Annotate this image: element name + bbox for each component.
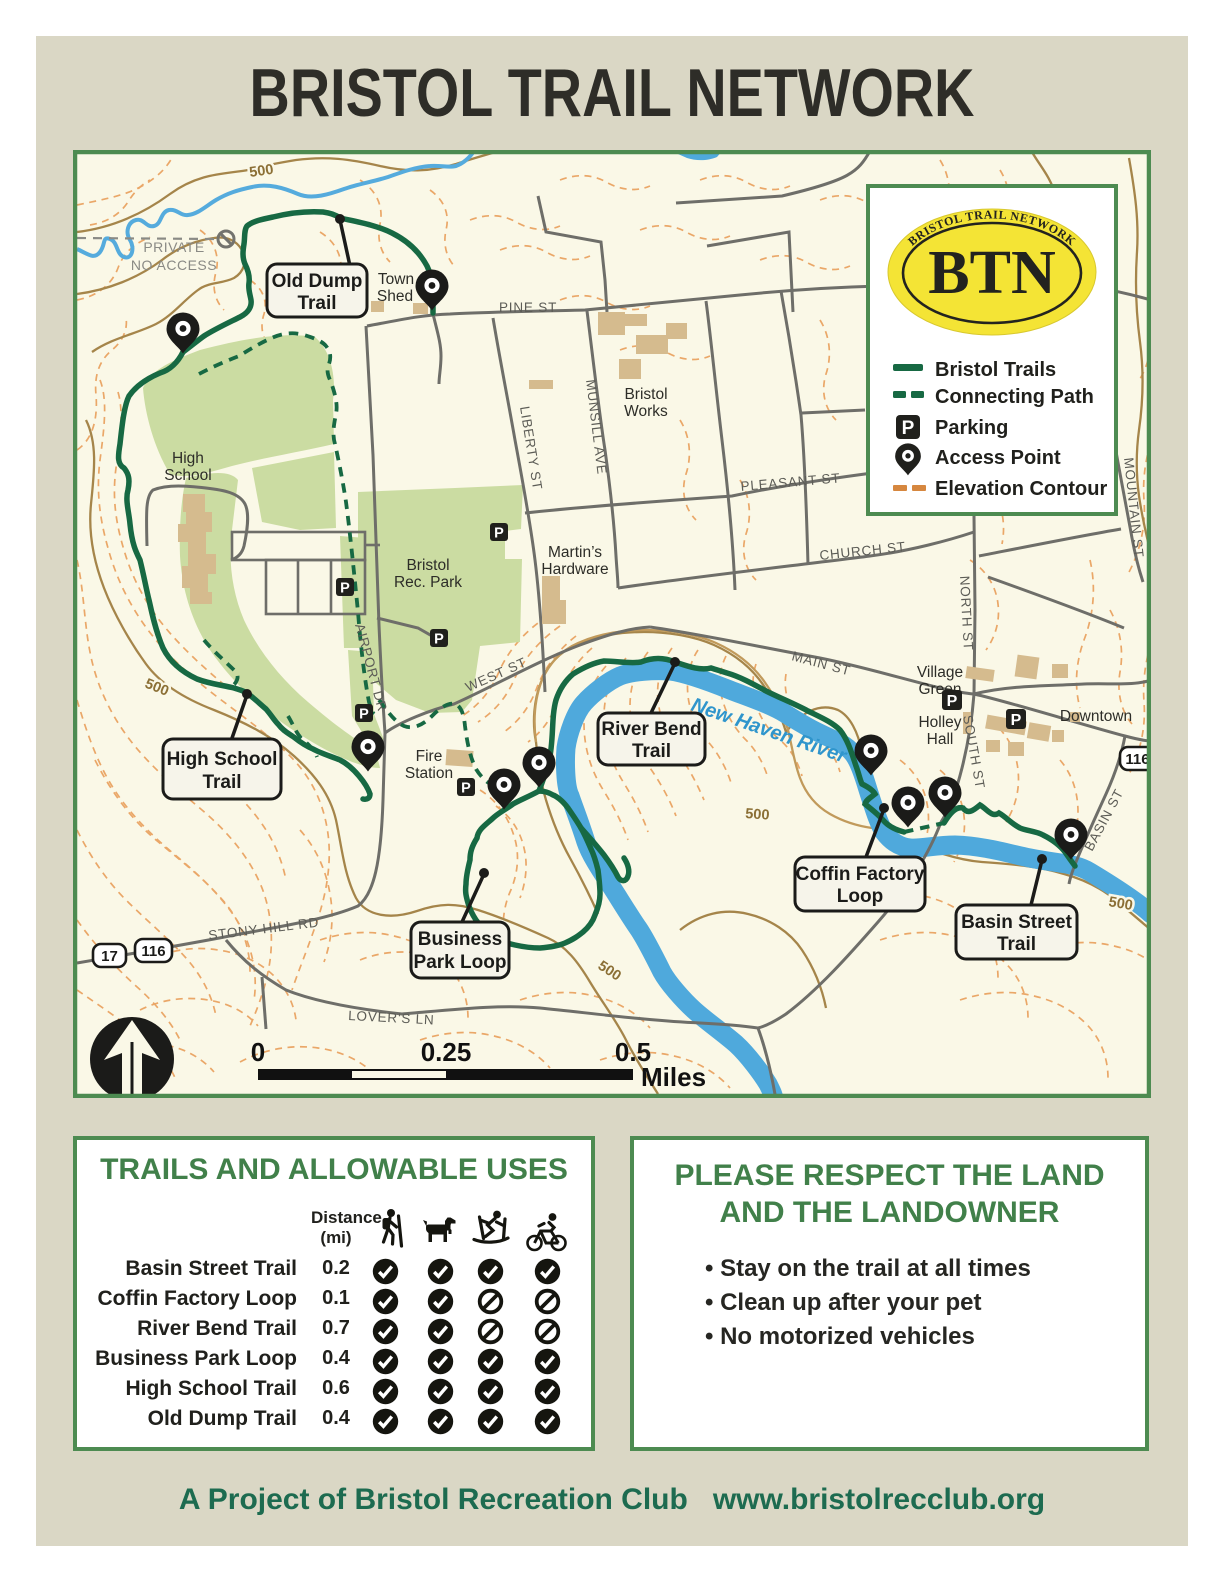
svg-text:Coffin Factory: Coffin Factory xyxy=(796,864,925,885)
svg-text:500: 500 xyxy=(745,806,770,824)
svg-text:High School: High School xyxy=(167,749,278,770)
svg-text:River Bend: River Bend xyxy=(601,719,701,740)
svg-text:Old Dump: Old Dump xyxy=(272,271,363,292)
svg-text:Downtown: Downtown xyxy=(1060,708,1132,725)
svg-text:P: P xyxy=(434,632,444,648)
svg-text:High: High xyxy=(172,450,204,467)
svg-text:Holley: Holley xyxy=(918,714,961,731)
svg-text:Shed: Shed xyxy=(377,288,413,305)
svg-text:0: 0 xyxy=(251,1037,265,1067)
svg-text:PINE ST: PINE ST xyxy=(499,300,557,315)
svg-text:Bristol: Bristol xyxy=(624,386,667,403)
svg-text:Elevation Contour: Elevation Contour xyxy=(935,478,1107,500)
svg-text:500: 500 xyxy=(248,162,274,181)
svg-text:Trail: Trail xyxy=(632,741,671,762)
svg-text:Miles: Miles xyxy=(641,1062,706,1092)
svg-text:116: 116 xyxy=(141,943,165,960)
svg-text:BTN: BTN xyxy=(928,239,1055,307)
svg-text:School: School xyxy=(164,467,211,484)
svg-text:Business: Business xyxy=(418,929,502,950)
svg-text:Rec. Park: Rec. Park xyxy=(394,574,462,591)
svg-text:116: 116 xyxy=(1125,751,1149,768)
svg-text:0.25: 0.25 xyxy=(421,1037,472,1067)
svg-text:NO ACCESS: NO ACCESS xyxy=(131,257,217,273)
svg-text:P: P xyxy=(947,693,958,710)
svg-text:Trail: Trail xyxy=(297,293,336,314)
svg-text:Bristol: Bristol xyxy=(406,557,449,574)
svg-text:Hall: Hall xyxy=(927,731,954,748)
svg-text:P: P xyxy=(902,418,915,439)
svg-text:Hardware: Hardware xyxy=(541,561,608,578)
svg-text:P: P xyxy=(461,781,471,797)
svg-text:P: P xyxy=(1011,712,1022,729)
svg-text:PRIVATE: PRIVATE xyxy=(143,239,204,255)
svg-text:P: P xyxy=(494,526,504,542)
svg-text:Fire: Fire xyxy=(416,748,443,765)
svg-text:P: P xyxy=(340,581,350,597)
svg-text:Connecting Path: Connecting Path xyxy=(935,386,1094,408)
svg-text:17: 17 xyxy=(101,948,118,965)
svg-text:Town: Town xyxy=(378,271,414,288)
svg-text:Trail: Trail xyxy=(202,772,241,793)
svg-text:Bristol Trails: Bristol Trails xyxy=(935,359,1056,381)
svg-text:Works: Works xyxy=(624,403,668,420)
svg-text:Trail: Trail xyxy=(997,934,1036,955)
svg-text:Station: Station xyxy=(405,765,453,782)
svg-text:Park Loop: Park Loop xyxy=(414,952,507,973)
svg-text:Martin’s: Martin’s xyxy=(548,544,602,561)
svg-text:Access Point: Access Point xyxy=(935,447,1061,469)
svg-text:P: P xyxy=(359,707,369,723)
svg-text:Basin Street: Basin Street xyxy=(961,912,1073,933)
svg-text:Loop: Loop xyxy=(837,886,883,907)
svg-text:Village: Village xyxy=(917,664,963,681)
svg-text:Parking: Parking xyxy=(935,417,1008,439)
